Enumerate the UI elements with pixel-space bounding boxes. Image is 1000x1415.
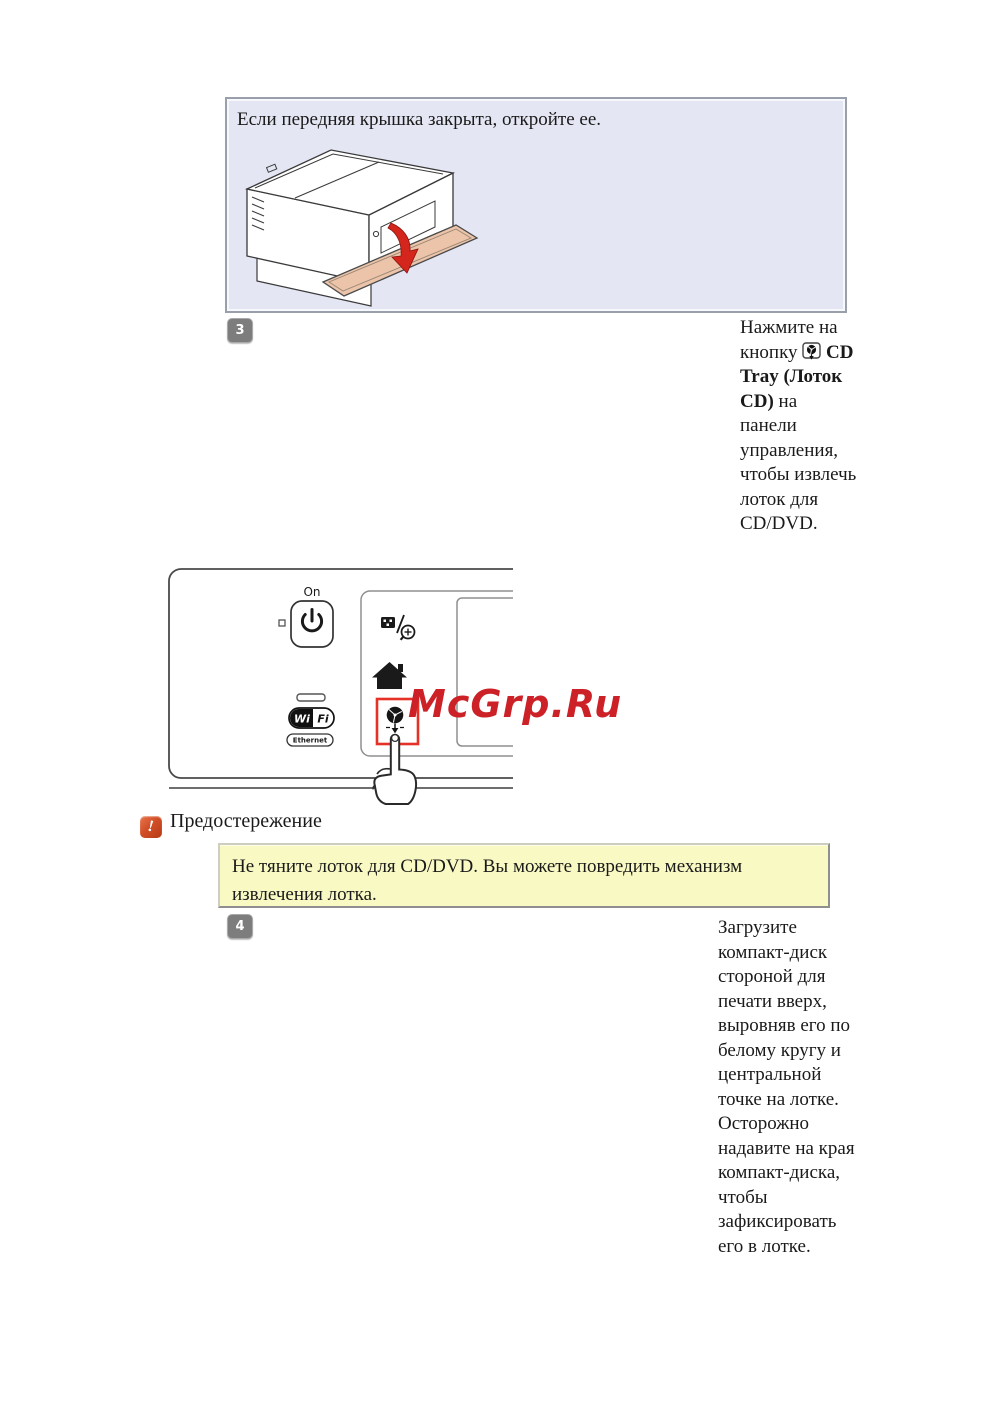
mcgrp-watermark: McGrp.Ru bbox=[408, 682, 622, 726]
open-cover-note-text: Если передняя крышка закрыта, откройте е… bbox=[227, 99, 845, 132]
ethernet-badge: Ethernet bbox=[287, 734, 333, 746]
step-3-text-before: Нажмите на кнопку bbox=[740, 317, 838, 363]
caution-icon: ! bbox=[140, 816, 162, 838]
step-3-text-after: на панели управления, чтобы извлечь лото… bbox=[740, 391, 856, 535]
step-4-badge: 4 bbox=[227, 914, 253, 939]
power-led bbox=[279, 620, 285, 626]
caution-label: Предостережение bbox=[170, 810, 322, 832]
power-button bbox=[291, 601, 333, 647]
step-3-badge: 3 bbox=[227, 318, 253, 343]
cd-tray-button-icon bbox=[802, 342, 821, 361]
caution-note-text: Не тяните лоток для CD/DVD. Вы можете по… bbox=[220, 845, 828, 909]
on-label: On bbox=[303, 585, 320, 599]
printer-open-cover-illustration bbox=[231, 137, 479, 309]
step-3-instruction: Нажмите на кнопку CD Tray (Лоток CD) на … bbox=[740, 316, 858, 537]
step-4-instruction: Загрузите компакт-диск стороной для печа… bbox=[718, 916, 859, 1259]
svg-text:Fi: Fi bbox=[317, 713, 329, 726]
svg-text:Wi: Wi bbox=[294, 713, 310, 726]
manual-page: Если передняя крышка закрыта, откройте е… bbox=[0, 0, 1000, 1415]
svg-text:Ethernet: Ethernet bbox=[293, 737, 328, 745]
caution-note-box: Не тяните лоток для CD/DVD. Вы можете по… bbox=[218, 843, 830, 908]
open-cover-note-box: Если передняя крышка закрыта, откройте е… bbox=[225, 97, 847, 313]
wifi-lamp bbox=[297, 694, 325, 701]
wifi-badge: Wi Fi bbox=[289, 708, 334, 728]
caution-heading: ! Предостережение bbox=[140, 810, 322, 836]
